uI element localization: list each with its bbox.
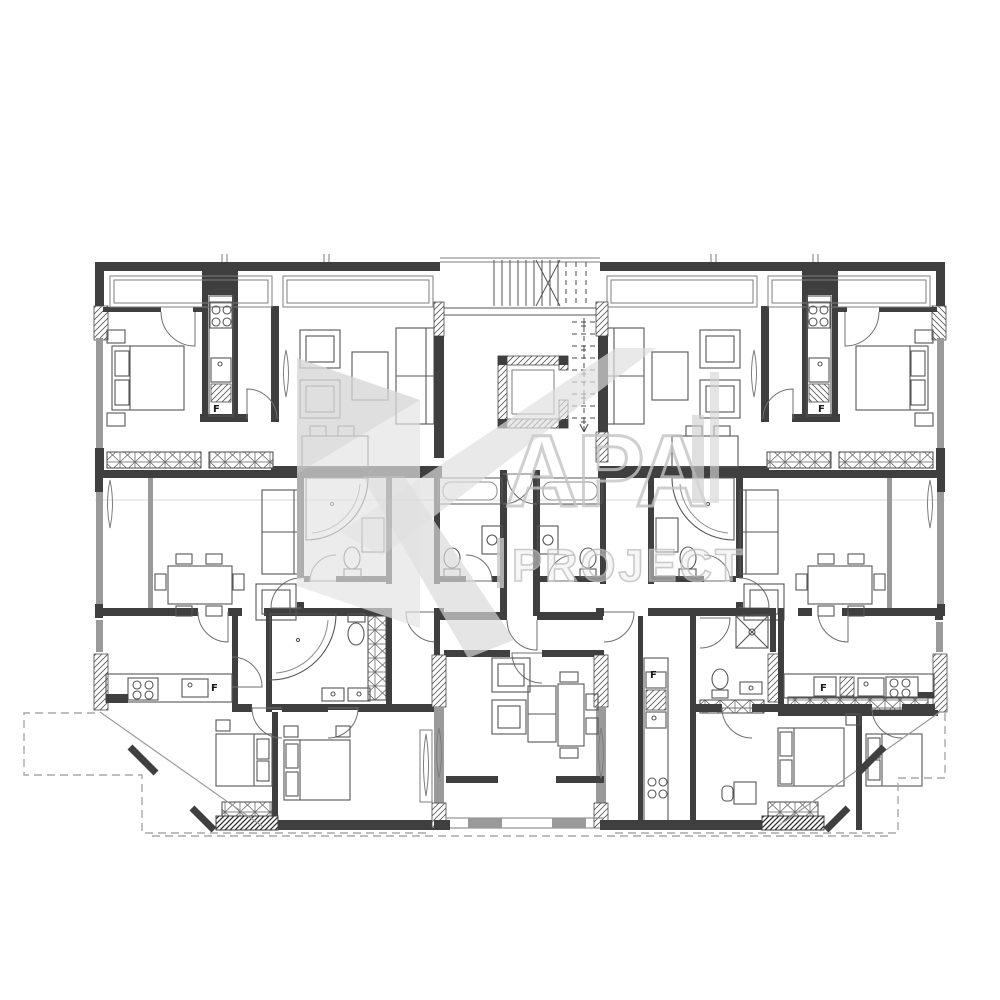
- window-sill-band: [768, 802, 818, 816]
- fridge-label: F: [650, 670, 657, 681]
- fridge-label: F: [820, 683, 827, 694]
- window-sill-band: [222, 802, 272, 816]
- fridge-label: F: [211, 683, 218, 694]
- wall-pier-hatch: [432, 655, 446, 707]
- watermark-bar: [692, 415, 704, 503]
- window-band: [96, 620, 103, 652]
- shaft-hatch: [368, 616, 386, 700]
- watermark-divider: [497, 538, 504, 588]
- wall-pier-hatch: [594, 655, 608, 707]
- watermark-bar: [710, 372, 719, 503]
- hatched-wall: [216, 816, 278, 830]
- window-band: [434, 707, 444, 803]
- floor-plan-page: F F F F F APA PROJECT: [0, 0, 1000, 1000]
- watermark-logo-text: APA: [505, 414, 707, 528]
- wall-pier-hatch: [933, 654, 947, 712]
- fridge: [646, 690, 666, 710]
- watermark-project-text: PROJECT: [512, 540, 746, 591]
- dishwasher: [840, 677, 854, 696]
- floor-plan-canvas: F F F F F APA PROJECT: [0, 0, 1000, 1000]
- window-band: [936, 622, 943, 652]
- fridge-label: F: [818, 404, 825, 415]
- hatched-wall: [762, 816, 824, 830]
- fridge-label: F: [213, 404, 220, 415]
